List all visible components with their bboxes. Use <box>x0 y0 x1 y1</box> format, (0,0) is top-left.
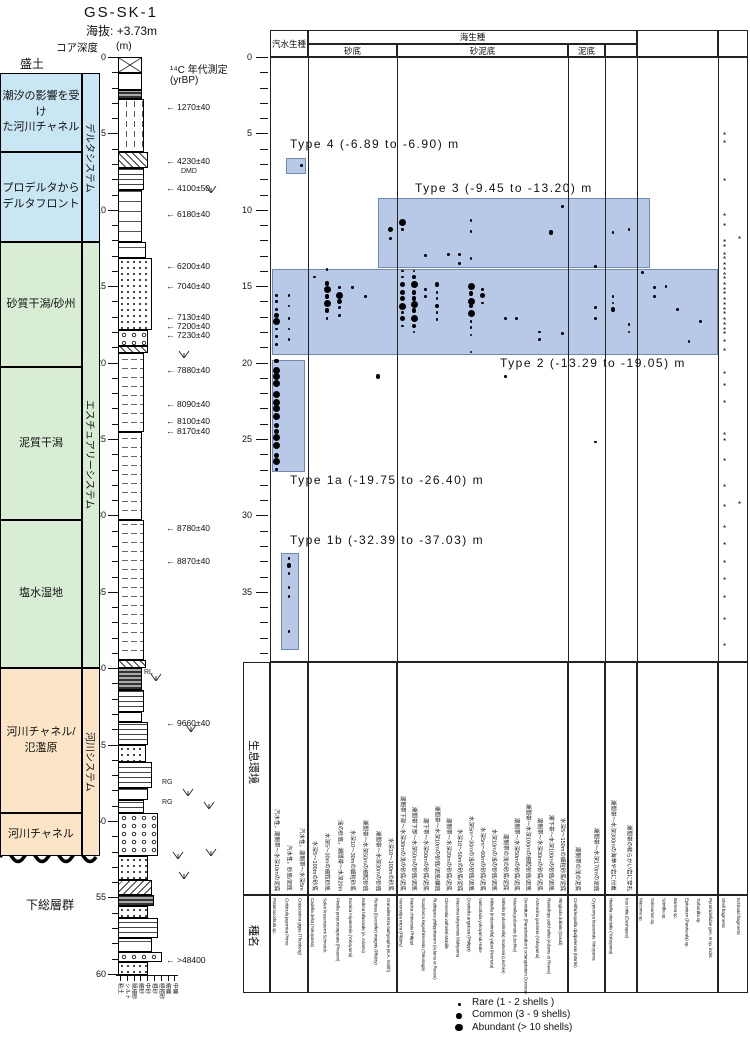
chart-depth-label: 35 <box>230 587 252 597</box>
c14-date: ←7040±40 <box>166 281 210 291</box>
habitat-group-cell <box>718 662 748 895</box>
lithology-segment <box>118 346 148 353</box>
chart-depth-tick <box>260 607 268 608</box>
habitat-text: 潮間帯～水深300mの海草や岩に付着 <box>609 800 615 891</box>
habitat-text: 水深10～100mの砂底 <box>387 838 393 891</box>
core-depth-tick <box>108 897 118 898</box>
species-name: Mitrella (Indomitrella) yabei (Nomura) <box>489 898 494 968</box>
core-depth-tick <box>108 668 118 669</box>
chart-depth-tick <box>260 179 268 180</box>
legend-item: Common (3 - 9 shells) <box>455 1009 570 1021</box>
left-arrow-icon: ← <box>166 209 175 219</box>
species-name: Shell fragments <box>721 898 726 928</box>
grainsize-tick <box>147 975 148 981</box>
habitat-text: 潮間帯～水深20mの砂底/泥底 <box>444 818 450 891</box>
lithology-segment <box>118 745 146 762</box>
lithology-segment <box>118 906 148 918</box>
chart-depth-tick <box>260 103 268 104</box>
header-substrate: 泥底 <box>568 44 605 57</box>
c14-date: ←4230±40 <box>166 156 210 166</box>
lithology-segment <box>118 258 152 330</box>
occurrence-dot <box>665 285 668 288</box>
habitat-row-label: 生息環境 <box>246 740 262 784</box>
occurrence-dot <box>274 313 279 318</box>
c14-date: ←8870±40 <box>166 556 210 566</box>
group-boundary-line <box>637 57 638 662</box>
species-name: Crassostrea gigas (Thunberg) <box>297 898 302 955</box>
header-brackish: 汽水生種 <box>270 30 308 57</box>
occurrence-dot <box>411 315 418 322</box>
species-name: Dentalium (Paradentalium) octangulatum D… <box>523 898 528 994</box>
habitat-text: 汽水性，潮間帯～水深5m <box>298 828 304 891</box>
occurrence-dot <box>458 253 461 256</box>
left-arrow-icon: ← <box>166 523 175 533</box>
c14-date: ←1270±40 <box>166 102 210 112</box>
lithology-segment <box>118 895 154 906</box>
surface-fill-label: 盛土 <box>20 55 44 72</box>
occurrence-dot <box>274 359 279 364</box>
habitat-text: 潮間帯の浅の泥底 <box>573 847 579 891</box>
species-name: Veremolpa micra (Pilsbry) <box>398 898 403 947</box>
occurrence-dot <box>324 286 331 293</box>
occurrence-dot <box>337 299 342 304</box>
species-name: Dosinella angulosa (Philippi) <box>466 898 471 952</box>
chart-depth-tick <box>260 378 268 379</box>
legend-item: Abundant (> 10 shells) <box>455 1021 572 1033</box>
shell-type-box <box>286 158 306 174</box>
lithology-segment <box>118 660 146 668</box>
chart-depth-tick <box>260 118 268 119</box>
header-substrate <box>605 44 637 57</box>
grainsize-tick <box>168 975 169 981</box>
occurrence-dot <box>653 286 656 289</box>
lithology-segment <box>118 952 162 962</box>
species-name: Epitonium (Parviscala) sp. <box>684 898 689 947</box>
species-name: Exotica miyatensis (Yokoyama) <box>348 898 353 957</box>
lithology-segment <box>118 520 144 660</box>
occurrence-dot <box>504 375 507 378</box>
group-boundary-line <box>718 57 719 662</box>
species-name: Cadella delta (Yokoyama) <box>309 898 314 947</box>
chart-depth-tick <box>260 317 268 318</box>
rootlet-symbol <box>203 796 215 804</box>
occurrence-dot <box>273 391 280 398</box>
chart-depth-tick <box>256 363 268 364</box>
habitat-text: 汽水性，潮間帯～水深10mの泥底 <box>272 809 278 891</box>
c14-date-label: 1270±40 <box>177 102 210 112</box>
species-name: Finella purpureoapicata (Preston) <box>335 898 340 961</box>
left-arrow-icon: ← <box>166 183 175 193</box>
system-label: エスチュアリーシステム <box>84 400 99 509</box>
group-boundary-line <box>397 57 398 662</box>
group-boundary-line <box>308 57 309 662</box>
grainsize-tick <box>174 975 175 981</box>
occurrence-dot <box>399 303 406 310</box>
chart-depth-tick <box>260 240 268 241</box>
species-name: Raetellops pulchellus (Adams et Reeve) <box>546 898 551 974</box>
system-box: 河川システム <box>82 668 100 856</box>
grainsize-tick <box>120 975 121 981</box>
lithology-segment <box>118 918 158 938</box>
chart-depth-tick <box>260 485 268 486</box>
sediment-mark-label: DMD <box>181 168 197 175</box>
fragment-mark: * <box>723 348 726 356</box>
core-depth-label: 60 <box>84 969 106 979</box>
shell-type-label: Type 3 (-9.45 to -13.20) m <box>415 181 593 195</box>
core-depth-tick <box>108 515 118 516</box>
chart-depth-tick <box>260 653 268 654</box>
rootlet-symbol <box>205 843 217 851</box>
chart-depth-tick <box>260 638 268 639</box>
system-box: デルタシステム <box>82 73 100 242</box>
core-depth-tick <box>108 57 118 58</box>
shell-type-label: Type 4 (-6.89 to -6.90) m <box>290 137 460 151</box>
species-name: Ruditapes philippinarum (Adams et Reeve) <box>432 898 437 980</box>
grainsize-tick <box>127 975 128 981</box>
chart-depth-tick <box>260 546 268 547</box>
shell-type-box <box>272 269 718 355</box>
chart-depth-tick <box>256 286 268 287</box>
core-id-title: GS-SK-1 <box>84 4 158 21</box>
chart-depth-tick <box>256 210 268 211</box>
species-row-label: 種名 <box>246 925 262 947</box>
occurrence-dot <box>400 290 405 295</box>
c14-date: ←4100±50 <box>166 183 210 193</box>
chart-depth-label: 15 <box>230 281 252 291</box>
left-arrow-icon: ← <box>166 281 175 291</box>
habitat-text: 水深5m～60mの砂底/泥底 <box>479 827 485 891</box>
core-depth-tick <box>108 592 118 593</box>
fragment-mark: * <box>723 438 726 446</box>
lithology-segment <box>118 242 146 258</box>
c14-date: ←7880±40 <box>166 365 210 375</box>
occurrence-dot <box>447 253 450 256</box>
c14-date-label: 7040±40 <box>177 281 210 291</box>
species-name: Cryptomya busoensis Yokoyama <box>591 898 596 960</box>
c14-date-label: 7230±40 <box>177 330 210 340</box>
occurrence-dot <box>481 288 484 291</box>
species-name: Cerithideopsilla djadjariensis (Martin) <box>572 898 577 967</box>
chart-depth-label: 25 <box>230 434 252 444</box>
occurrence-dot <box>400 296 405 301</box>
habitat-text: 潮間帯～水深100mの細粒砂底/泥底 <box>524 804 530 891</box>
environment-box: プロデルタから デルタフロント <box>0 152 82 242</box>
habitat-text: 潮間帯～水深30mの砂底/泥底 <box>536 818 542 891</box>
occurrence-dot <box>273 434 280 441</box>
chart-depth-label: 30 <box>230 510 252 520</box>
shell-type-label: Type 1b (-32.39 to -37.03) m <box>290 533 484 547</box>
lithology-segment <box>118 432 142 520</box>
lithology-segment <box>118 938 152 952</box>
fragment-mark: * <box>723 595 726 603</box>
left-arrow-icon: ← <box>166 416 175 426</box>
chart-depth-tick <box>260 271 268 272</box>
occurrence-dot <box>436 311 439 314</box>
habitat-text: 潮下帯～水深50mの砂底/泥底 <box>422 818 428 891</box>
left-arrow-icon: ← <box>166 426 175 436</box>
sediment-mark-label: RL <box>144 669 153 676</box>
legend: Rare (1 - 2 shells )Common (3 - 9 shells… <box>455 996 635 1036</box>
fragment-mark: * <box>723 560 726 568</box>
habitat-text: 潮間帯の浅の砂底/泥底 <box>501 834 507 891</box>
occurrence-dot <box>411 301 418 308</box>
header-substrate: 砂底 <box>308 44 397 57</box>
fragment-mark: * <box>723 643 726 651</box>
group-boundary-line <box>605 57 606 662</box>
lithology-segment <box>118 813 158 856</box>
occurrence-dot <box>480 293 485 298</box>
chart-depth-tick <box>256 515 268 516</box>
occurrence-dot <box>611 307 616 312</box>
fragment-mark: * <box>738 236 741 244</box>
fragment-mark: * <box>723 617 726 625</box>
legend-label: Common (3 - 9 shells) <box>472 1009 570 1020</box>
elevation-label: 海抜: <box>86 24 113 38</box>
c14-date-label: 9660±40 <box>177 718 210 728</box>
occurrence-dot <box>288 586 291 589</box>
left-arrow-icon: ← <box>166 718 175 728</box>
lithology-segment <box>118 856 148 880</box>
c14-date: ←8100±40 <box>166 416 210 426</box>
left-arrow-icon: ← <box>166 261 175 271</box>
species-name: Scintilla sp. <box>661 898 666 919</box>
habitat-text: 潮間帯～水深170mの泥底 <box>592 828 598 891</box>
occurrence-dot <box>325 281 330 286</box>
c14-date-label: 4100±50 <box>177 183 210 193</box>
habitat-text: 水深5～100mの砂底 <box>310 841 316 891</box>
header-marine: 海生種 <box>308 30 637 44</box>
environment-box: 河川チャネル/ 氾濫原 <box>0 668 82 813</box>
left-arrow-icon: ← <box>166 399 175 409</box>
c14-date-label: >48400 <box>177 955 206 965</box>
core-depth-tick <box>108 133 118 134</box>
fragment-mark: * <box>723 383 726 391</box>
lithology-segment <box>118 353 144 432</box>
occurrence-dot <box>561 332 564 335</box>
habitat-text: 水深10～30mの細粒砂底 <box>349 830 355 891</box>
occurrence-dot <box>300 164 303 167</box>
occurrence-dot <box>275 294 278 297</box>
occurrence-dot <box>436 297 439 300</box>
c14-date-label: 6180±40 <box>177 209 210 219</box>
fragment-mark: * <box>723 504 726 512</box>
elevation-line: 海抜: +3.73m <box>86 22 157 39</box>
occurrence-dot <box>275 300 278 303</box>
chart-depth-tick <box>260 454 268 455</box>
c14-date: ←8780±40 <box>166 523 210 533</box>
lithology-segment <box>118 712 142 722</box>
habitat-text: 潮間帯下部～水深50mの砂底/泥底 <box>410 807 416 891</box>
basement-group-label: 下総層群 <box>26 896 74 913</box>
species-name: Turbonilla sp. <box>696 898 701 923</box>
habitat-text: 潮間帯～水深30mの砂底 <box>374 831 380 891</box>
chart-depth-tick <box>260 195 268 196</box>
occurrence-dot <box>275 335 278 338</box>
species-name: Eulima bifascialis (A. Adams) <box>360 898 365 953</box>
lithology-segment <box>118 57 142 73</box>
lithology-segment <box>118 73 142 90</box>
occurrence-dot <box>436 291 439 294</box>
c14-date: ←8170±40 <box>166 426 210 436</box>
c14-date-label: 8100±40 <box>177 416 210 426</box>
header-other <box>637 30 718 57</box>
species-name: Varicorbula yokoyamai Habe <box>478 898 483 953</box>
c14-heading: ¹⁴C 年代測定 <box>170 61 228 76</box>
chart-depth-tick <box>256 133 268 134</box>
species-name: Macoma tokyoensis Makiyama <box>455 898 460 957</box>
fragment-mark: * <box>723 525 726 533</box>
lithology-segment <box>118 690 144 712</box>
habitat-text: 潮間帯下部～水深30mの浅の砂底/泥底 <box>399 796 405 891</box>
habitat-text: 汽水性，砂底/泥底 <box>285 845 291 891</box>
occurrence-dot <box>275 328 278 331</box>
chart-depth-tick <box>260 577 268 578</box>
header-substrate: 砂泥底 <box>397 44 568 57</box>
lithology-segment <box>118 668 142 690</box>
left-arrow-icon: ← <box>166 156 175 166</box>
species-name: Solecurtus sp. <box>649 898 654 925</box>
c14-unit: (yrBP) <box>170 75 198 86</box>
fragment-mark: * <box>723 140 726 148</box>
c14-date-label: 8870±40 <box>177 556 210 566</box>
species-name: Irus mitis (Deshayes) <box>624 898 629 938</box>
chart-depth-tick <box>260 424 268 425</box>
occurrence-dot <box>411 281 418 288</box>
occurrence-dot <box>401 311 404 314</box>
lithology-segment <box>118 168 144 190</box>
fragment-mark: * <box>723 178 726 186</box>
lithology-segment <box>118 330 148 346</box>
fragment-mark: * <box>723 542 726 550</box>
species-name: Mactra chinensis Philippi <box>409 898 414 945</box>
chart-depth-tick <box>260 256 268 257</box>
species-name: Potamocorbula sp. <box>271 898 276 934</box>
chart-depth-tick <box>260 470 268 471</box>
rootlet-symbol <box>172 846 184 854</box>
chart-depth-tick <box>256 439 268 440</box>
core-depth-tick <box>108 439 118 440</box>
occurrence-dot <box>504 317 507 320</box>
lithology-segment <box>118 722 148 745</box>
occurrence-dot <box>275 308 278 311</box>
habitat-text: 水深10～50mの砂底/泥底 <box>456 829 462 891</box>
occurrence-dot <box>561 205 564 208</box>
shell-type-box <box>378 198 650 268</box>
chart-depth-tick <box>260 88 268 89</box>
lithology-segment <box>118 962 148 975</box>
occurrence-dot <box>273 413 280 420</box>
core-depth-tick <box>108 363 118 364</box>
chart-depth-label: 5 <box>230 128 252 138</box>
habitat-text: 潮間帯～水深50mの細粒砂底 <box>361 820 367 891</box>
occurrence-dot <box>275 343 278 346</box>
chart-depth-tick <box>260 149 268 150</box>
c14-date-label: 8780±40 <box>177 523 210 533</box>
lithology-segment <box>118 788 148 800</box>
chart-depth-tick <box>260 561 268 562</box>
occurrence-dot <box>538 338 541 341</box>
core-depth-tick <box>108 286 118 287</box>
species-name: Echinoid fragments <box>736 898 741 935</box>
c14-date: ←9660±40 <box>166 718 210 728</box>
left-arrow-icon: ← <box>166 365 175 375</box>
occurrence-dot <box>338 314 341 317</box>
fragment-mark: * <box>723 213 726 221</box>
occurrence-dot <box>468 310 475 317</box>
species-name: Acteocina gordonis (Yokoyama) <box>535 898 540 958</box>
system-box: エスチュアリーシステム <box>82 242 100 668</box>
fragment-mark: * <box>723 339 726 347</box>
occurrence-dot <box>273 405 280 412</box>
chart-depth-tick <box>256 592 268 593</box>
species-name: Scapharca kagoshimensis (Tokunaga) <box>421 898 426 971</box>
chart-depth-tick <box>260 622 268 623</box>
depth-unit-label: (m) <box>116 40 132 52</box>
c14-date: ←6180±40 <box>166 209 210 219</box>
core-depth-tick <box>108 745 118 746</box>
core-occurrence-figure: GS-SK-1 海抜: +3.73m コア深度 (m) ¹⁴C 年代測定 (yr… <box>0 0 750 1037</box>
chart-depth-tick <box>260 225 268 226</box>
left-arrow-icon: ← <box>166 102 175 112</box>
lithology-segment <box>118 190 142 242</box>
occurrence-dot <box>273 373 280 380</box>
species-name: Pyramidellidae gen. et sp. indet. <box>707 898 712 958</box>
occurrence-dot <box>274 423 279 428</box>
chart-depth-tick <box>260 393 268 394</box>
habitat-text: 水深10mの浅の砂底/泥底 <box>490 829 496 891</box>
c14-date-label: 8170±40 <box>177 426 210 436</box>
fragment-mark: * <box>723 371 726 379</box>
habitat-text: 潮間帯～水深50mの砂底/泥底 <box>513 818 519 891</box>
species-name: Solen krusensterni Schrenck <box>322 898 327 952</box>
fragment-mark: * <box>723 223 726 231</box>
shell-type-label: Type 2 (-13.29 to -19.05) m <box>500 356 686 370</box>
species-name: Retusa (Decorifer) insignis (Pilsbry) <box>373 898 378 965</box>
rootlet-symbol <box>178 345 190 353</box>
occurrence-dot <box>594 317 597 320</box>
fragment-mark: * <box>723 577 726 585</box>
species-name: Hiatella orientalis (Yokoyama) <box>608 898 613 954</box>
chart-depth-tick <box>260 332 268 333</box>
occurrence-dot <box>273 442 280 449</box>
lithology-segment <box>118 152 148 168</box>
core-depth-label: 0 <box>84 52 106 62</box>
occurrence-dot <box>676 308 679 311</box>
occurrence-dot <box>364 295 367 298</box>
c14-date: ←8090±40 <box>166 399 210 409</box>
grainsize-tick <box>154 975 155 981</box>
occurrence-dot <box>275 468 278 471</box>
left-arrow-icon: ← <box>166 955 175 965</box>
occurrence-dot <box>399 219 406 226</box>
c14-date-label: 7880±40 <box>177 365 210 375</box>
chart-depth-tick <box>260 500 268 501</box>
c14-date-label: 8090±40 <box>177 399 210 409</box>
lithology-segment <box>118 880 152 895</box>
habitat-text: 水深5m～30mの浅の砂底/泥底 <box>467 816 473 891</box>
grainsize-tick <box>161 975 162 981</box>
c14-date-label: 4230±40 <box>177 156 210 166</box>
habitat-text: 潮下帯～水深100mの砂底/泥底 <box>547 815 553 891</box>
elevation-value: +3.73m <box>117 24 157 38</box>
occurrence-dot <box>324 300 331 307</box>
sediment-mark-label: RG <box>162 799 173 806</box>
species-name: Macoma sp. <box>638 898 643 922</box>
chart-depth-tick <box>260 531 268 532</box>
grainsize-tick <box>140 975 141 981</box>
occurrence-dot <box>468 283 475 290</box>
species-name: Ringicula doliaris (Gould) <box>557 898 562 945</box>
